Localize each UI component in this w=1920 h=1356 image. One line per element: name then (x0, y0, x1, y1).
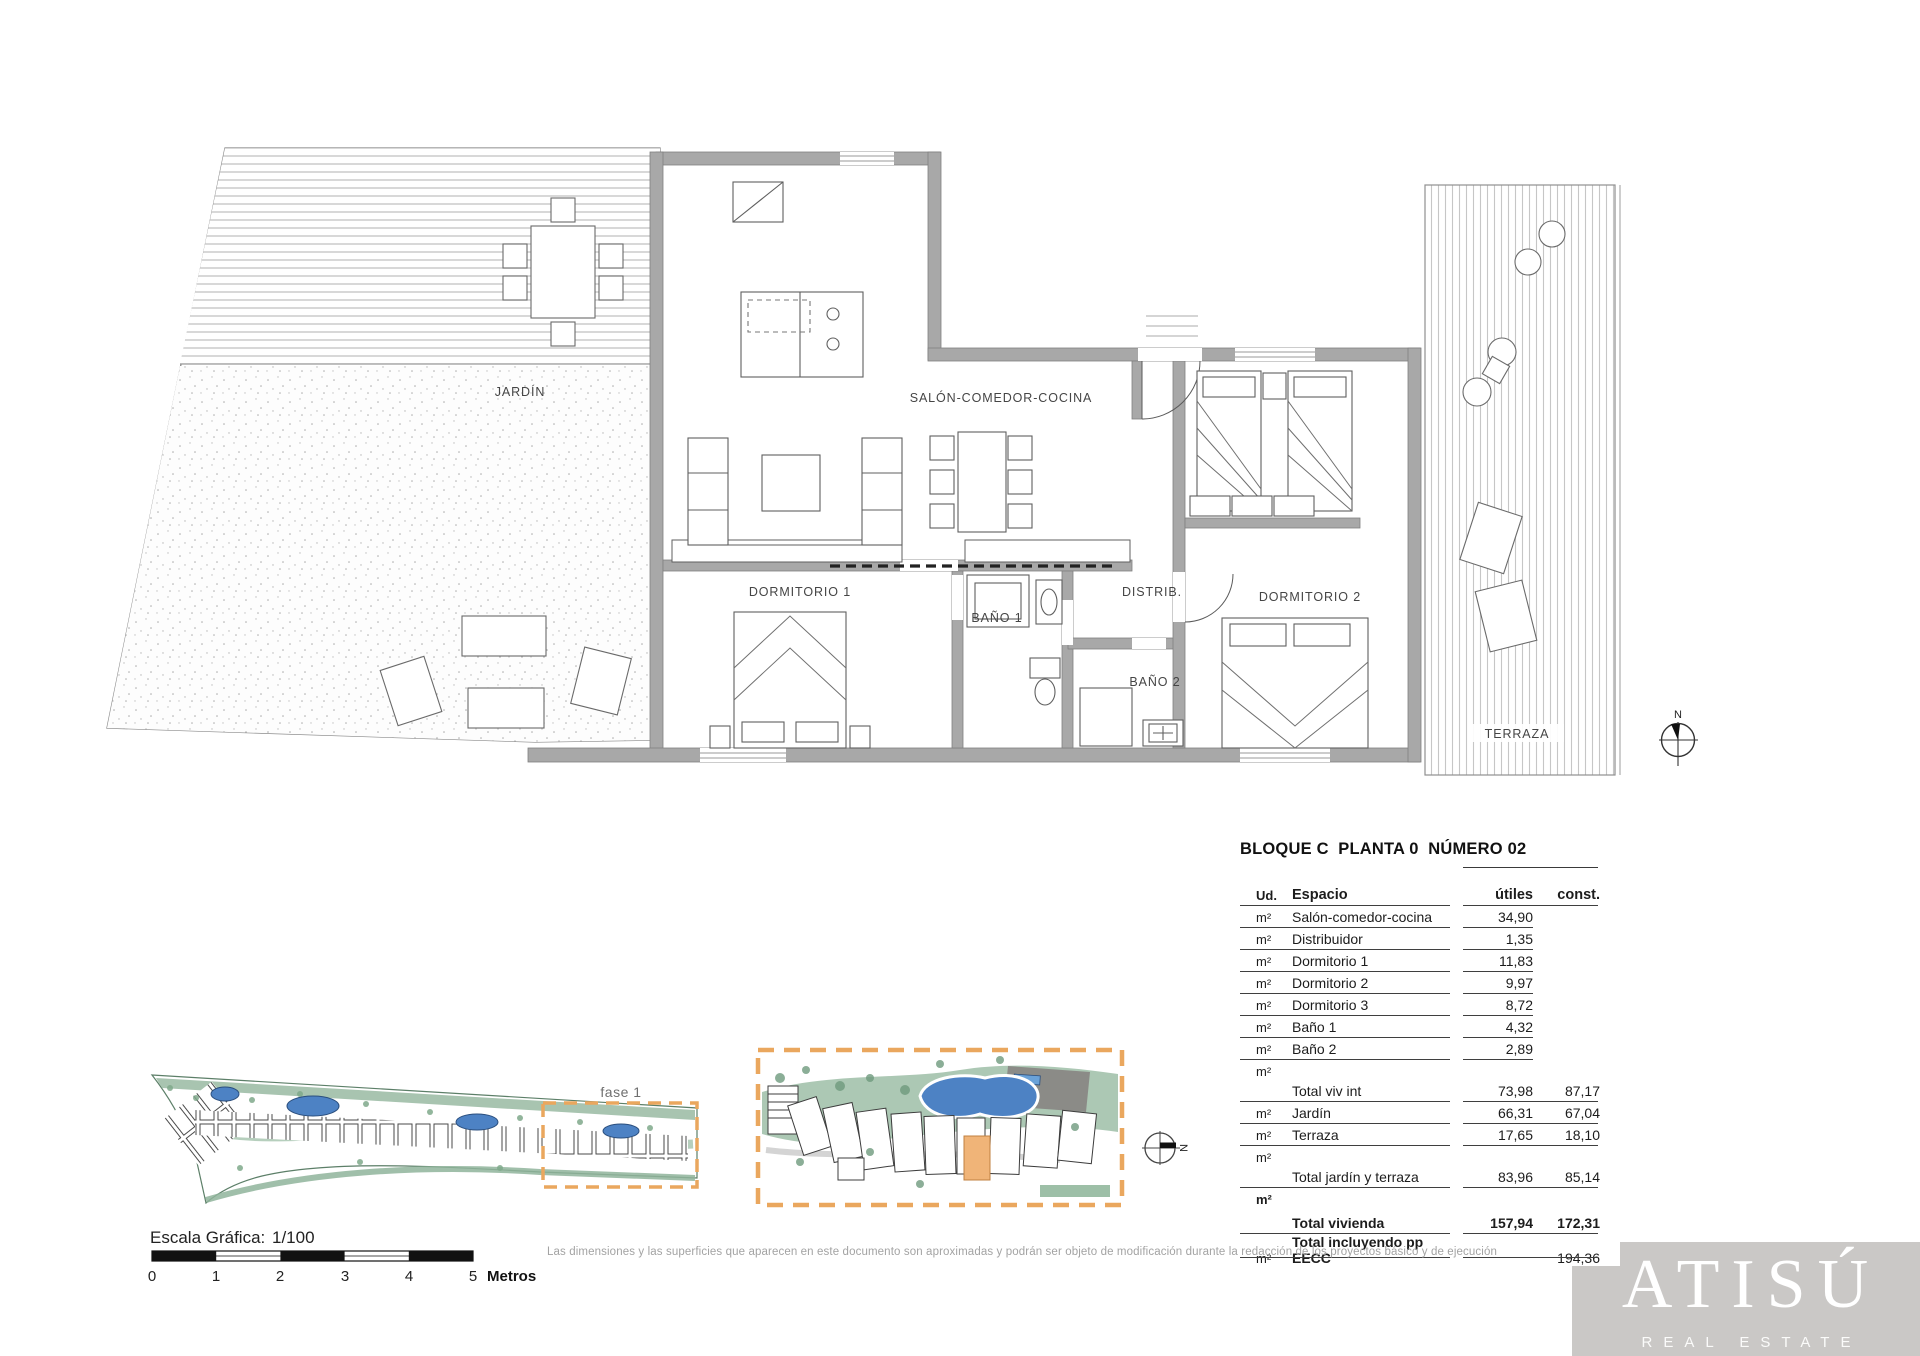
bed-dormitorio-1 (710, 612, 870, 748)
cell-utiles: 73,98 (1462, 1083, 1533, 1102)
north-compass: N (1659, 709, 1698, 766)
table-title-rule (1463, 867, 1598, 868)
skylight-marker (733, 182, 783, 222)
summary-table-header: Ud. Espacio útiles const. (1240, 874, 1600, 906)
detail-pool (920, 1075, 1038, 1117)
cell-unit: m² (1240, 1060, 1292, 1082)
brand-tagline: REAL ESTATE (1572, 1334, 1920, 1351)
kitchen-island (741, 292, 863, 377)
summary-table-body: m²Salón-comedor-cocina34,90m²Distribuido… (1240, 906, 1600, 1258)
north-letter: N (1674, 709, 1682, 721)
cell-space: Total viv int (1292, 1083, 1462, 1102)
cell-space: Dormitorio 1 (1292, 953, 1462, 972)
table-row: m²Total viv int73,9887,17 (1240, 1060, 1600, 1102)
cell-space: Jardín (1292, 1105, 1462, 1124)
cell-const: 172,31 (1533, 1215, 1600, 1234)
cell-space: Salón-comedor-cocina (1292, 909, 1462, 928)
room-label-dormitorio-2: DORMITORIO 2 (1259, 590, 1361, 604)
cell-utiles: 83,96 (1462, 1169, 1533, 1188)
cell-const: 87,17 (1533, 1083, 1600, 1102)
table-row: m²Baño 14,32 (1240, 1016, 1600, 1038)
scale-tick-2: 2 (276, 1268, 284, 1285)
scale-tick-4: 4 (405, 1268, 413, 1285)
detail-north-letter: N (1177, 1144, 1189, 1152)
cell-space: Dormitorio 2 (1292, 975, 1462, 994)
cell-space: Total jardín y terraza (1292, 1169, 1462, 1188)
cell-unit: m² (1240, 932, 1292, 950)
scale-tick-0: 0 (148, 1268, 156, 1285)
cell-space: Baño 1 (1292, 1019, 1462, 1038)
cell-utiles: 4,32 (1462, 1019, 1533, 1038)
brand-logo: ATISÚ REAL ESTATE (1572, 1242, 1920, 1356)
cell-space: Baño 2 (1292, 1041, 1462, 1060)
cell-unit: m² (1240, 1128, 1292, 1146)
room-label-bano-1: BAÑO 1 (971, 611, 1022, 625)
room-label-jardin: JARDÍN (495, 384, 546, 399)
site-master-plan: fase 1 (152, 1075, 697, 1203)
phase-1-label: fase 1 (600, 1084, 641, 1100)
garden-area (107, 148, 660, 742)
table-row: m²Total jardín y terraza83,9685,14 (1240, 1146, 1600, 1188)
cell-utiles: 17,65 (1462, 1127, 1533, 1146)
room-label-bano-2: BAÑO 2 (1129, 675, 1180, 689)
terrace-area (1425, 185, 1620, 775)
cell-unit: m² (1240, 1106, 1292, 1124)
table-row: m²Dormitorio 29,97 (1240, 972, 1600, 994)
cell-const: 67,04 (1533, 1105, 1600, 1124)
scale-units-label: Metros (487, 1268, 536, 1285)
cell-unit: m² (1240, 954, 1292, 972)
site-detail-plan (758, 1050, 1122, 1205)
cell-space: Total vivienda (1292, 1215, 1462, 1234)
room-label-distribuidor: DISTRIB. (1122, 585, 1182, 599)
table-row: m²Salón-comedor-cocina34,90 (1240, 906, 1600, 928)
apartment-plan: JARDÍN SALÓN-COMEDOR-COCINA DORMITORIO 1… (495, 152, 1550, 762)
column-header-useful: útiles (1462, 887, 1533, 906)
table-row: m²Dormitorio 111,83 (1240, 950, 1600, 972)
cell-utiles (1462, 1266, 1533, 1269)
cell-unit: m² (1240, 998, 1292, 1016)
column-header-built: const. (1533, 887, 1600, 906)
disclaimer-text: Las dimensiones y las superficies que ap… (547, 1246, 1497, 1258)
surface-summary-table: BLOQUE C PLANTA 0 NÚMERO 02 Ud. Espacio … (1240, 840, 1600, 859)
cell-unit: m² (1240, 1042, 1292, 1060)
cell-space: Dormitorio 3 (1292, 997, 1462, 1016)
cell-unit: m² (1240, 1020, 1292, 1038)
cell-utiles: 11,83 (1462, 953, 1533, 972)
scale-tick-1: 1 (212, 1268, 220, 1285)
dining-set (930, 432, 1032, 532)
cell-utiles: 1,35 (1462, 931, 1533, 950)
cell-space: Terraza (1292, 1127, 1462, 1146)
cell-unit: m² (1240, 976, 1292, 994)
cell-utiles: 66,31 (1462, 1105, 1533, 1124)
table-row: m²Dormitorio 38,72 (1240, 994, 1600, 1016)
cell-unit: m² (1240, 1146, 1292, 1168)
table-row: m²Terraza17,6518,10 (1240, 1124, 1600, 1146)
cell-utiles: 9,97 (1462, 975, 1533, 994)
cell-unit: m² (1240, 1188, 1292, 1210)
plan-sheet: JARDÍN SALÓN-COMEDOR-COCINA DORMITORIO 1… (0, 0, 1920, 1356)
detail-north-needle-icon (1160, 1143, 1176, 1149)
table-row: m²Baño 22,89 (1240, 1038, 1600, 1060)
table-title: BLOQUE C PLANTA 0 NÚMERO 02 (1240, 840, 1600, 859)
table-row: m²Total vivienda157,94172,31 (1240, 1188, 1600, 1234)
cell-utiles: 157,94 (1462, 1215, 1533, 1234)
cell-utiles: 34,90 (1462, 909, 1533, 928)
scale-tick-3: 3 (341, 1268, 349, 1285)
detail-north-compass: N (1142, 1131, 1189, 1165)
room-label-terraza: TERRAZA (1485, 727, 1550, 741)
graphic-scale: Escala Gráfica: 1/100 0 1 2 3 4 5 Metros (148, 1228, 536, 1285)
architectural-drawing: JARDÍN SALÓN-COMEDOR-COCINA DORMITORIO 1… (0, 0, 1920, 1356)
table-row: m²Distribuidor1,35 (1240, 928, 1600, 950)
column-header-unit: Ud. (1240, 888, 1292, 906)
table-row: m²Jardín66,3167,04 (1240, 1102, 1600, 1124)
scale-tick-5: 5 (469, 1268, 477, 1285)
room-label-salon: SALÓN-COMEDOR-COCINA (910, 390, 1093, 405)
scale-label: Escala Gráfica: (150, 1228, 265, 1247)
cell-space: Distribuidor (1292, 931, 1462, 950)
highlighted-unit (964, 1136, 990, 1180)
brand-name: ATISÚ (1572, 1246, 1920, 1324)
cell-utiles: 8,72 (1462, 997, 1533, 1016)
scale-ratio: 1/100 (272, 1228, 315, 1247)
cell-unit: m² (1240, 910, 1292, 928)
cell-const: 18,10 (1533, 1127, 1600, 1146)
room-label-dormitorio-1: DORMITORIO 1 (749, 585, 851, 599)
column-header-space: Espacio (1292, 887, 1462, 906)
cell-const: 85,14 (1533, 1169, 1600, 1188)
cell-utiles: 2,89 (1462, 1041, 1533, 1060)
